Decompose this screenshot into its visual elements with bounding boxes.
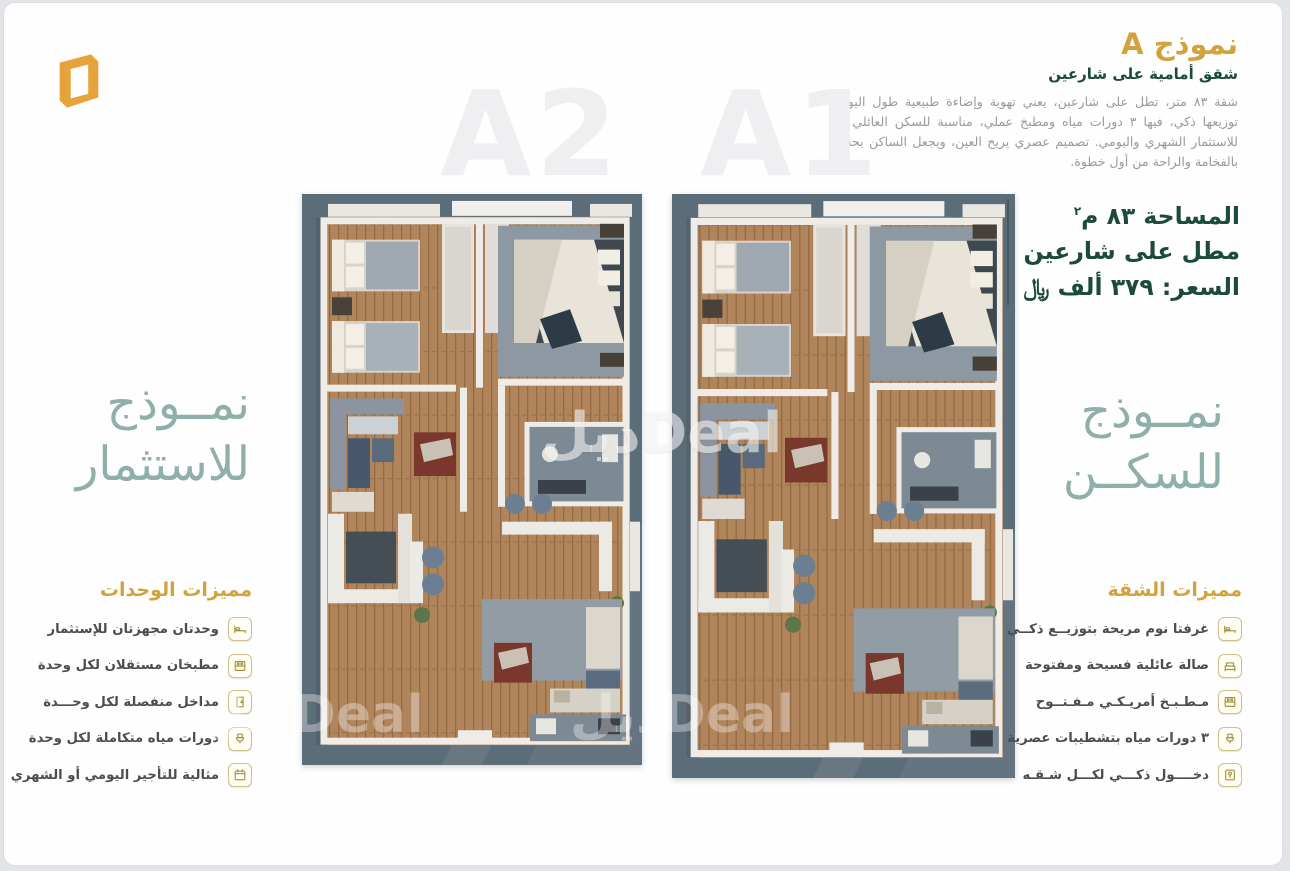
kitchen-icon	[1218, 690, 1242, 714]
list-item: ٣ دورات مياه بتشطيبات عصرية	[1010, 727, 1242, 751]
list-item: دخــــول ذكـــي لكـــل شـقـه	[1010, 763, 1242, 787]
unit-info-block: المساحة ٨٣ م٢ مطل على شارعين السعر: ٣٧٩ …	[1007, 199, 1240, 305]
list-item: صالة عائلية فسيحة ومفتوحة	[1010, 654, 1242, 678]
view-line: مطل على شارعين	[1023, 234, 1240, 269]
features-apartment-title: مميزات الشقة	[1010, 579, 1242, 601]
list-item: وحدتان مجهزتان للإستثمار	[30, 617, 252, 641]
features-apartment: مميزات الشقة غرفتا نوم مريحة بتوزيــع ذك…	[1010, 579, 1242, 800]
list-item: غرفتا نوم مريحة بتوزيــع ذكــي	[1010, 617, 1242, 641]
bed-icon	[228, 617, 252, 641]
list-item: مثالية للتأجير اليومي أو الشهري	[30, 763, 252, 787]
bed-icon	[1218, 617, 1242, 641]
list-item: دورات مياه متكاملة لكل وحدة	[30, 727, 252, 751]
price-line: السعر: ٣٧٩ ألف ﷼	[1023, 270, 1240, 305]
plan-label-a2: A2	[440, 65, 621, 203]
floorplan-a2	[302, 194, 642, 765]
bath-icon	[1218, 727, 1242, 751]
list-item: مـطـبـخ أمريـكـي مـفـتــوح	[1010, 690, 1242, 714]
area-line: المساحة ٨٣ م٢	[1023, 199, 1240, 234]
slogan-investment: نمــوذج للاستثمار	[32, 373, 250, 495]
sofa-icon	[1218, 654, 1242, 678]
header: نموذج A شقق أمامية على شارعين شقة ٨٣ متر…	[836, 27, 1238, 172]
plan-label-a1: A1	[700, 65, 881, 203]
page-title: نموذج A	[836, 27, 1238, 61]
slogan-residence: نمــوذج للسكــن	[1063, 381, 1224, 503]
floorplan-a1	[672, 194, 1015, 778]
page-subtitle: شقق أمامية على شارعين	[836, 65, 1238, 83]
list-item: مداخل منفصلة لكل وحـــدة	[30, 690, 252, 714]
features-units: مميزات الوحدات وحدتان مجهزتان للإستثمار …	[30, 579, 252, 800]
kitchen-icon	[228, 654, 252, 678]
brochure-page: نموذج A شقق أمامية على شارعين شقة ٨٣ متر…	[3, 2, 1283, 866]
features-units-title: مميزات الوحدات	[30, 579, 252, 601]
smart-entry-icon	[1218, 763, 1242, 787]
description-paragraph: شقة ٨٣ متر، تطل على شارعين، يعني تهوية و…	[836, 92, 1238, 172]
list-item: مطبخان مستقلان لكل وحدة	[30, 654, 252, 678]
door-icon	[228, 690, 252, 714]
bath-icon	[228, 727, 252, 751]
calendar-icon	[228, 763, 252, 787]
company-logo-icon	[56, 51, 102, 111]
